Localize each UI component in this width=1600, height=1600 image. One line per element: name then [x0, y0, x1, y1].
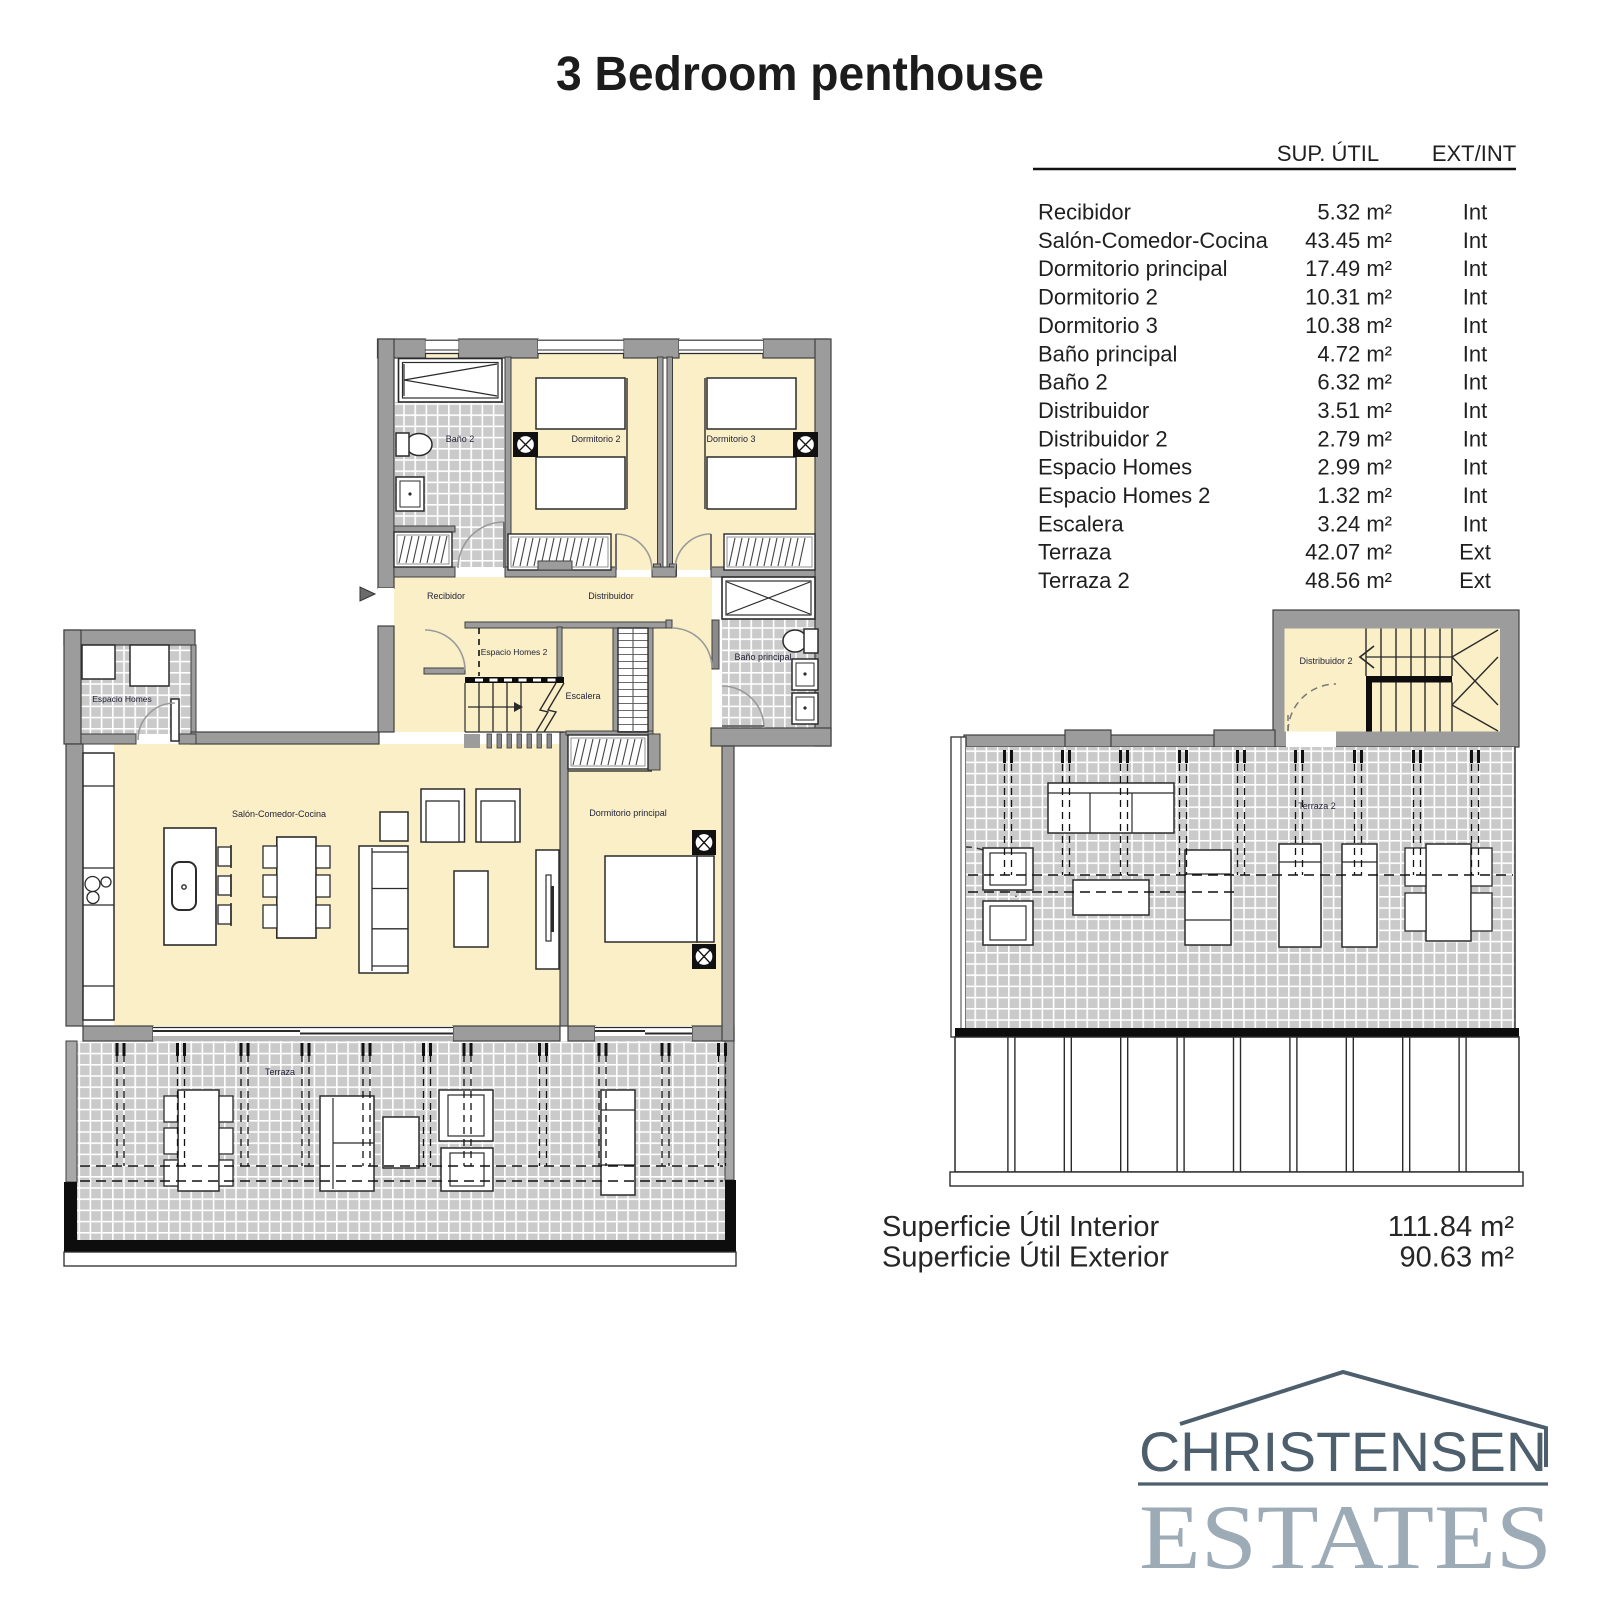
- svg-text:Baño principal: Baño principal: [1038, 341, 1177, 366]
- svg-text:42.07 m²: 42.07 m²: [1305, 540, 1392, 565]
- svg-text:Distribuidor: Distribuidor: [1038, 398, 1149, 423]
- svg-text:Salón-Comedor-Cocina: Salón-Comedor-Cocina: [1038, 228, 1269, 253]
- svg-text:111.84 m²: 111.84 m²: [1388, 1211, 1515, 1243]
- svg-text:Dormitorio principal: Dormitorio principal: [1038, 256, 1228, 281]
- svg-text:1.32 m²: 1.32 m²: [1317, 483, 1392, 508]
- svg-text:Distribuidor 2: Distribuidor 2: [1299, 656, 1352, 666]
- svg-text:Int: Int: [1463, 256, 1487, 281]
- svg-text:Dormitorio principal: Dormitorio principal: [589, 808, 667, 818]
- svg-text:Int: Int: [1463, 285, 1487, 310]
- svg-text:5.32 m²: 5.32 m²: [1317, 200, 1392, 225]
- svg-text:Distribuidor: Distribuidor: [588, 591, 634, 601]
- svg-text:10.38 m²: 10.38 m²: [1305, 313, 1392, 338]
- svg-text:Terraza: Terraza: [1038, 540, 1112, 565]
- svg-text:Distribuidor 2: Distribuidor 2: [1038, 426, 1168, 451]
- svg-text:Terraza 2: Terraza 2: [1298, 801, 1336, 811]
- svg-text:Dormitorio 3: Dormitorio 3: [1038, 313, 1158, 338]
- svg-text:Int: Int: [1463, 398, 1487, 423]
- svg-text:2.79 m²: 2.79 m²: [1317, 426, 1392, 451]
- svg-text:Terraza 2: Terraza 2: [1038, 568, 1130, 593]
- svg-text:Ext: Ext: [1459, 568, 1491, 593]
- svg-text:ESTATES: ESTATES: [1139, 1486, 1552, 1588]
- svg-text:Superficie Útil Interior: Superficie Útil Interior: [882, 1210, 1160, 1243]
- svg-text:Int: Int: [1463, 455, 1487, 480]
- svg-text:Int: Int: [1463, 426, 1487, 451]
- svg-text:EXT/INT: EXT/INT: [1432, 141, 1516, 166]
- svg-text:Int: Int: [1463, 200, 1487, 225]
- svg-text:17.49 m²: 17.49 m²: [1305, 256, 1392, 281]
- svg-text:Baño 2: Baño 2: [1038, 370, 1108, 395]
- svg-text:3 Bedroom penthouse: 3 Bedroom penthouse: [556, 48, 1044, 101]
- svg-text:4.72 m²: 4.72 m²: [1317, 341, 1392, 366]
- svg-text:Int: Int: [1463, 483, 1487, 508]
- svg-text:43.45 m²: 43.45 m²: [1305, 228, 1392, 253]
- svg-text:Espacio Homes 2: Espacio Homes 2: [481, 647, 548, 657]
- svg-text:Recibidor: Recibidor: [1038, 200, 1131, 225]
- svg-text:Baño 2: Baño 2: [446, 434, 475, 444]
- svg-text:CHRISTENSEN: CHRISTENSEN: [1139, 1420, 1547, 1483]
- svg-text:2.99 m²: 2.99 m²: [1317, 455, 1392, 480]
- svg-text:Int: Int: [1463, 313, 1487, 338]
- svg-text:Escalera: Escalera: [565, 691, 600, 701]
- svg-text:Baño principal: Baño principal: [734, 652, 791, 662]
- svg-text:Terraza: Terraza: [265, 1067, 295, 1077]
- svg-text:Espacio Homes 2: Espacio Homes 2: [1038, 483, 1210, 508]
- svg-text:Dormitorio 3: Dormitorio 3: [706, 434, 755, 444]
- svg-text:Int: Int: [1463, 228, 1487, 253]
- svg-text:Dormitorio 2: Dormitorio 2: [1038, 285, 1158, 310]
- svg-text:Ext: Ext: [1459, 540, 1491, 565]
- svg-text:90.63 m²: 90.63 m²: [1400, 1242, 1515, 1274]
- svg-text:Superficie Útil Exterior: Superficie Útil Exterior: [882, 1241, 1169, 1274]
- svg-text:3.51 m²: 3.51 m²: [1317, 398, 1392, 423]
- svg-text:Escalera: Escalera: [1038, 511, 1124, 536]
- svg-text:Int: Int: [1463, 511, 1487, 536]
- svg-text:Dormitorio 2: Dormitorio 2: [571, 434, 620, 444]
- svg-text:Recibidor: Recibidor: [427, 591, 465, 601]
- svg-text:6.32 m²: 6.32 m²: [1317, 370, 1392, 395]
- svg-text:48.56 m²: 48.56 m²: [1305, 568, 1392, 593]
- svg-text:Int: Int: [1463, 341, 1487, 366]
- svg-text:10.31 m²: 10.31 m²: [1305, 285, 1392, 310]
- svg-text:SUP. ÚTIL: SUP. ÚTIL: [1277, 141, 1379, 166]
- svg-text:Espacio Homes: Espacio Homes: [92, 694, 152, 704]
- svg-text:Int: Int: [1463, 370, 1487, 395]
- svg-text:Salón-Comedor-Cocina: Salón-Comedor-Cocina: [232, 809, 326, 819]
- svg-text:3.24 m²: 3.24 m²: [1317, 511, 1392, 536]
- svg-text:Espacio Homes: Espacio Homes: [1038, 455, 1192, 480]
